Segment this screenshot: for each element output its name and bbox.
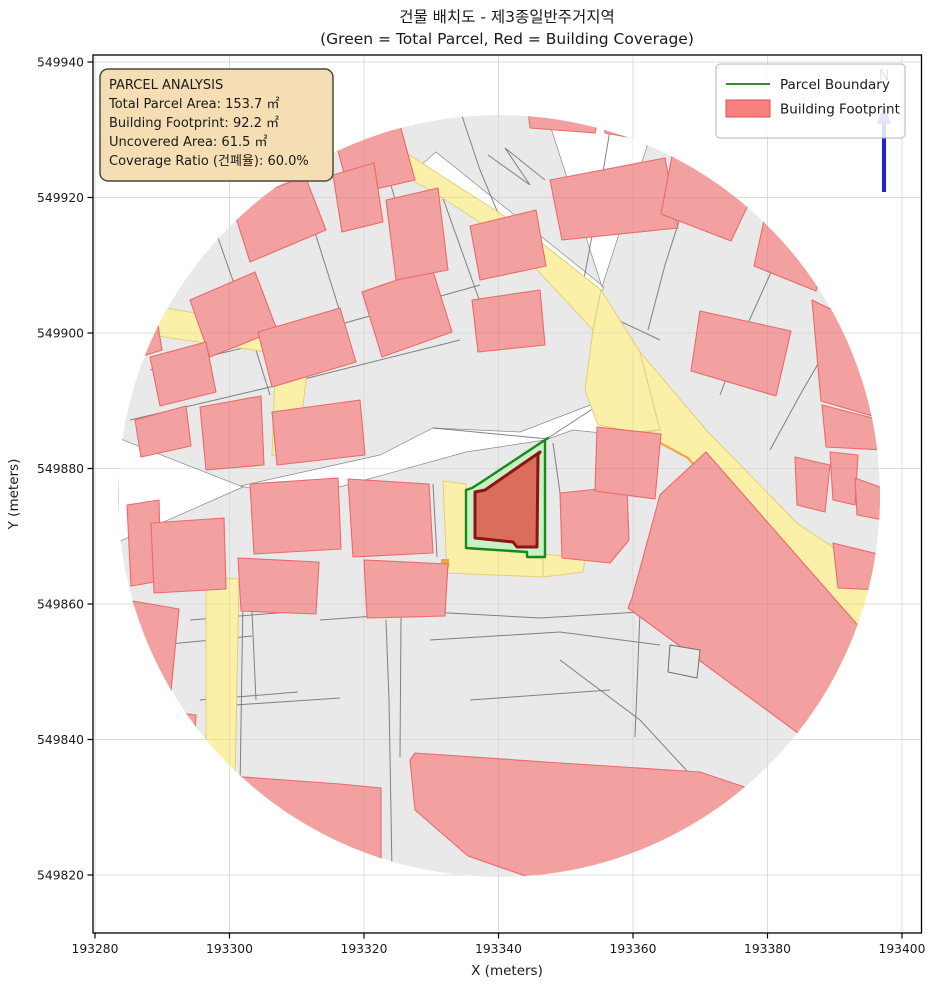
x-tick: 193320 bbox=[341, 942, 388, 956]
map-area bbox=[93, 55, 921, 933]
y-tick-labels: 549940 549920 549900 549880 549860 54984… bbox=[37, 55, 84, 882]
y-tick: 549940 bbox=[37, 55, 84, 69]
building-polygon bbox=[527, 100, 600, 133]
building-polygon bbox=[855, 478, 888, 520]
y-tick: 549820 bbox=[37, 868, 84, 882]
building-polygon bbox=[250, 478, 341, 554]
x-tick: 193360 bbox=[610, 942, 657, 956]
building-polygon bbox=[833, 543, 886, 590]
analysis-total-area: Total Parcel Area: 153.7 ㎡ bbox=[108, 97, 279, 112]
legend-building-label: Building Footprint bbox=[780, 102, 900, 118]
building-polygon bbox=[230, 776, 381, 885]
x-tick: 193280 bbox=[72, 942, 119, 956]
building-polygon bbox=[200, 396, 264, 470]
map-plot: 193280 193300 193320 193340 193360 19338… bbox=[0, 0, 934, 990]
building-polygon bbox=[124, 288, 162, 360]
y-tick: 549860 bbox=[37, 597, 84, 611]
building-polygon bbox=[830, 452, 858, 505]
x-tick-labels: 193280 193300 193320 193340 193360 19338… bbox=[72, 942, 926, 956]
legend: Parcel Boundary Building Footprint bbox=[716, 64, 905, 138]
building-polygon bbox=[386, 188, 448, 280]
figure-title: 건물 배치도 - 제3종일반주거지역 bbox=[399, 8, 615, 26]
building-polygon bbox=[472, 290, 545, 352]
building-polygon bbox=[172, 712, 196, 751]
analysis-title: PARCEL ANALYSIS bbox=[109, 78, 223, 93]
building-polygon bbox=[151, 518, 226, 593]
analysis-uncovered: Uncovered Area: 61.5 ㎡ bbox=[109, 135, 268, 150]
building-polygon bbox=[238, 558, 319, 614]
y-tick: 549900 bbox=[37, 326, 84, 340]
x-axis-label: X (meters) bbox=[471, 963, 543, 979]
analysis-footprint: Building Footprint: 92.2 ㎡ bbox=[109, 116, 279, 131]
x-tick: 193400 bbox=[879, 942, 926, 956]
building-polygon bbox=[272, 400, 365, 465]
figure-canvas: 193280 193300 193320 193340 193360 19338… bbox=[0, 0, 934, 990]
analysis-box: PARCEL ANALYSIS Total Parcel Area: 153.7… bbox=[100, 69, 333, 181]
building-polygon bbox=[795, 457, 830, 512]
legend-parcel-label: Parcel Boundary bbox=[780, 77, 890, 93]
parcel-notch bbox=[668, 645, 700, 678]
building-polygon bbox=[560, 486, 629, 563]
x-tick: 193340 bbox=[475, 942, 522, 956]
x-tick: 193380 bbox=[744, 942, 791, 956]
building-polygon bbox=[133, 601, 179, 691]
figure-subtitle: (Green = Total Parcel, Red = Building Co… bbox=[320, 30, 694, 48]
analysis-coverage: Coverage Ratio (건폐율): 60.0% bbox=[109, 154, 309, 169]
building-polygon bbox=[364, 560, 448, 618]
y-tick: 549920 bbox=[37, 191, 84, 205]
y-tick: 549840 bbox=[37, 733, 84, 747]
x-tick: 193300 bbox=[206, 942, 253, 956]
building-polygon bbox=[812, 300, 886, 420]
road-parcel bbox=[206, 577, 239, 790]
y-tick: 549880 bbox=[37, 462, 84, 476]
building-polygon bbox=[348, 479, 433, 557]
y-axis-label: Y (meters) bbox=[6, 459, 22, 531]
legend-building-swatch bbox=[726, 100, 770, 117]
building-polygon bbox=[595, 427, 661, 499]
building-polygon bbox=[603, 103, 630, 137]
